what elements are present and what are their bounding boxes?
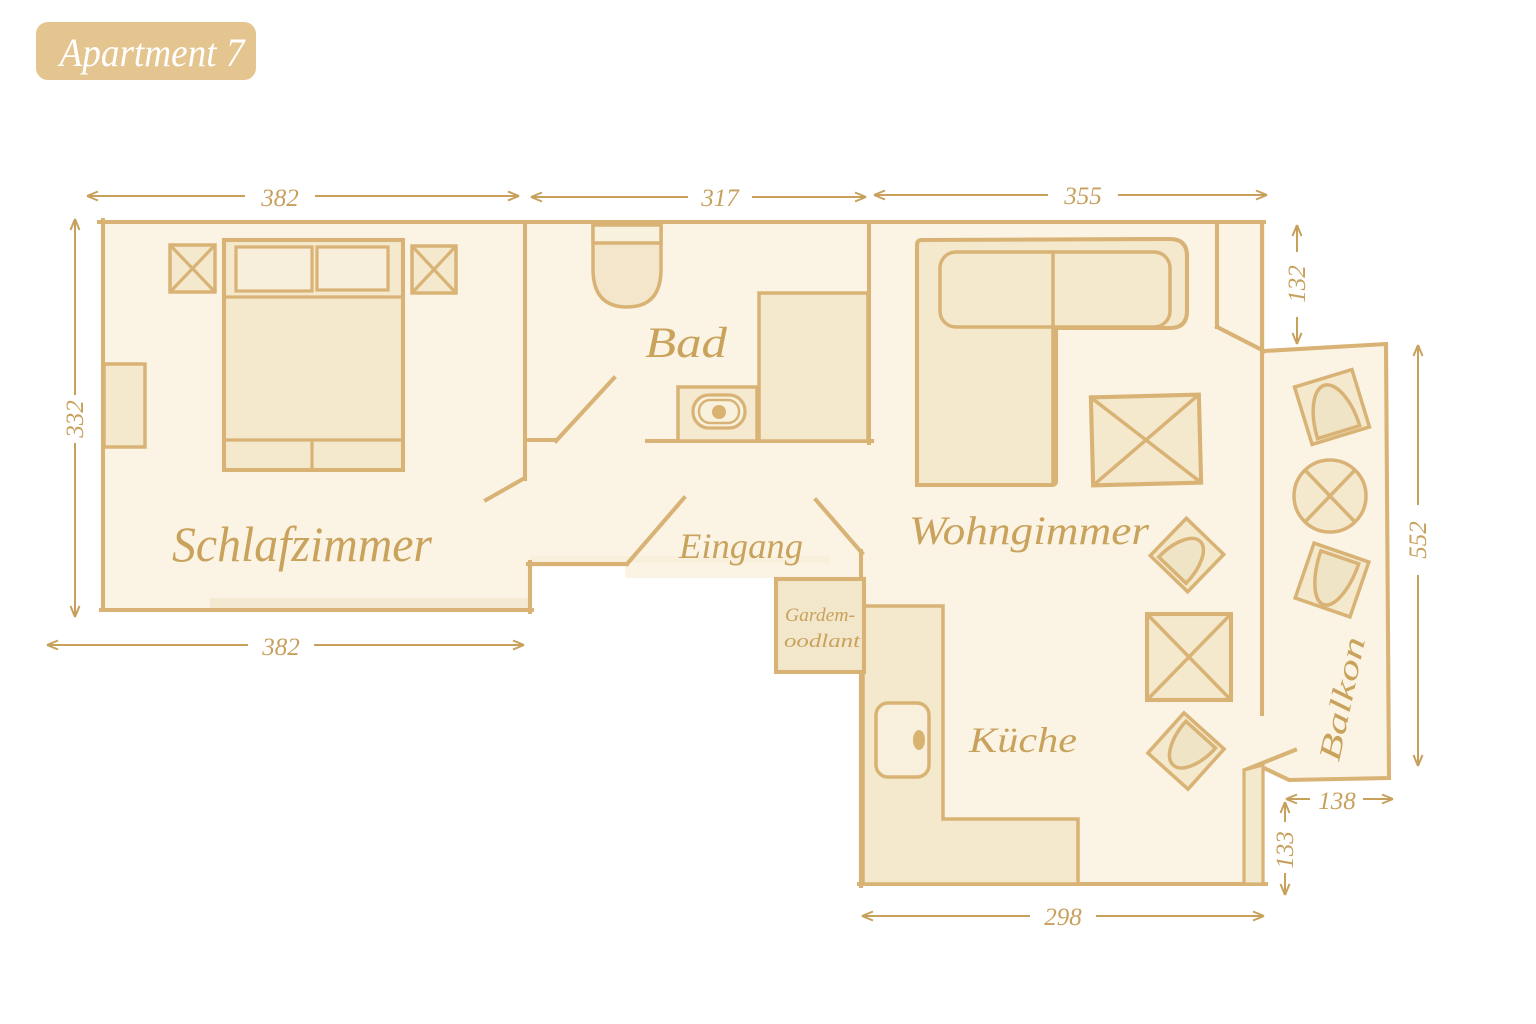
svg-text:oodlant: oodlant xyxy=(784,631,861,652)
svg-text:382: 382 xyxy=(261,634,300,661)
svg-text:317: 317 xyxy=(700,185,740,212)
svg-text:Bad: Bad xyxy=(645,320,728,367)
svg-text:138: 138 xyxy=(1318,788,1356,815)
svg-text:298: 298 xyxy=(1044,904,1082,931)
svg-text:355: 355 xyxy=(1063,183,1102,210)
svg-text:Küche: Küche xyxy=(968,720,1077,760)
svg-text:Schlafzimmer: Schlafzimmer xyxy=(172,516,433,572)
svg-text:382: 382 xyxy=(260,185,299,212)
svg-text:332: 332 xyxy=(62,400,89,439)
svg-text:Apartment 7: Apartment 7 xyxy=(57,30,247,75)
svg-text:552: 552 xyxy=(1405,521,1432,559)
svg-text:Gardem-: Gardem- xyxy=(785,605,855,626)
svg-text:Wohngimmer: Wohngimmer xyxy=(909,508,1149,553)
svg-text:133: 133 xyxy=(1272,831,1299,869)
svg-text:Eingang: Eingang xyxy=(678,526,803,566)
svg-text:132: 132 xyxy=(1284,265,1311,303)
